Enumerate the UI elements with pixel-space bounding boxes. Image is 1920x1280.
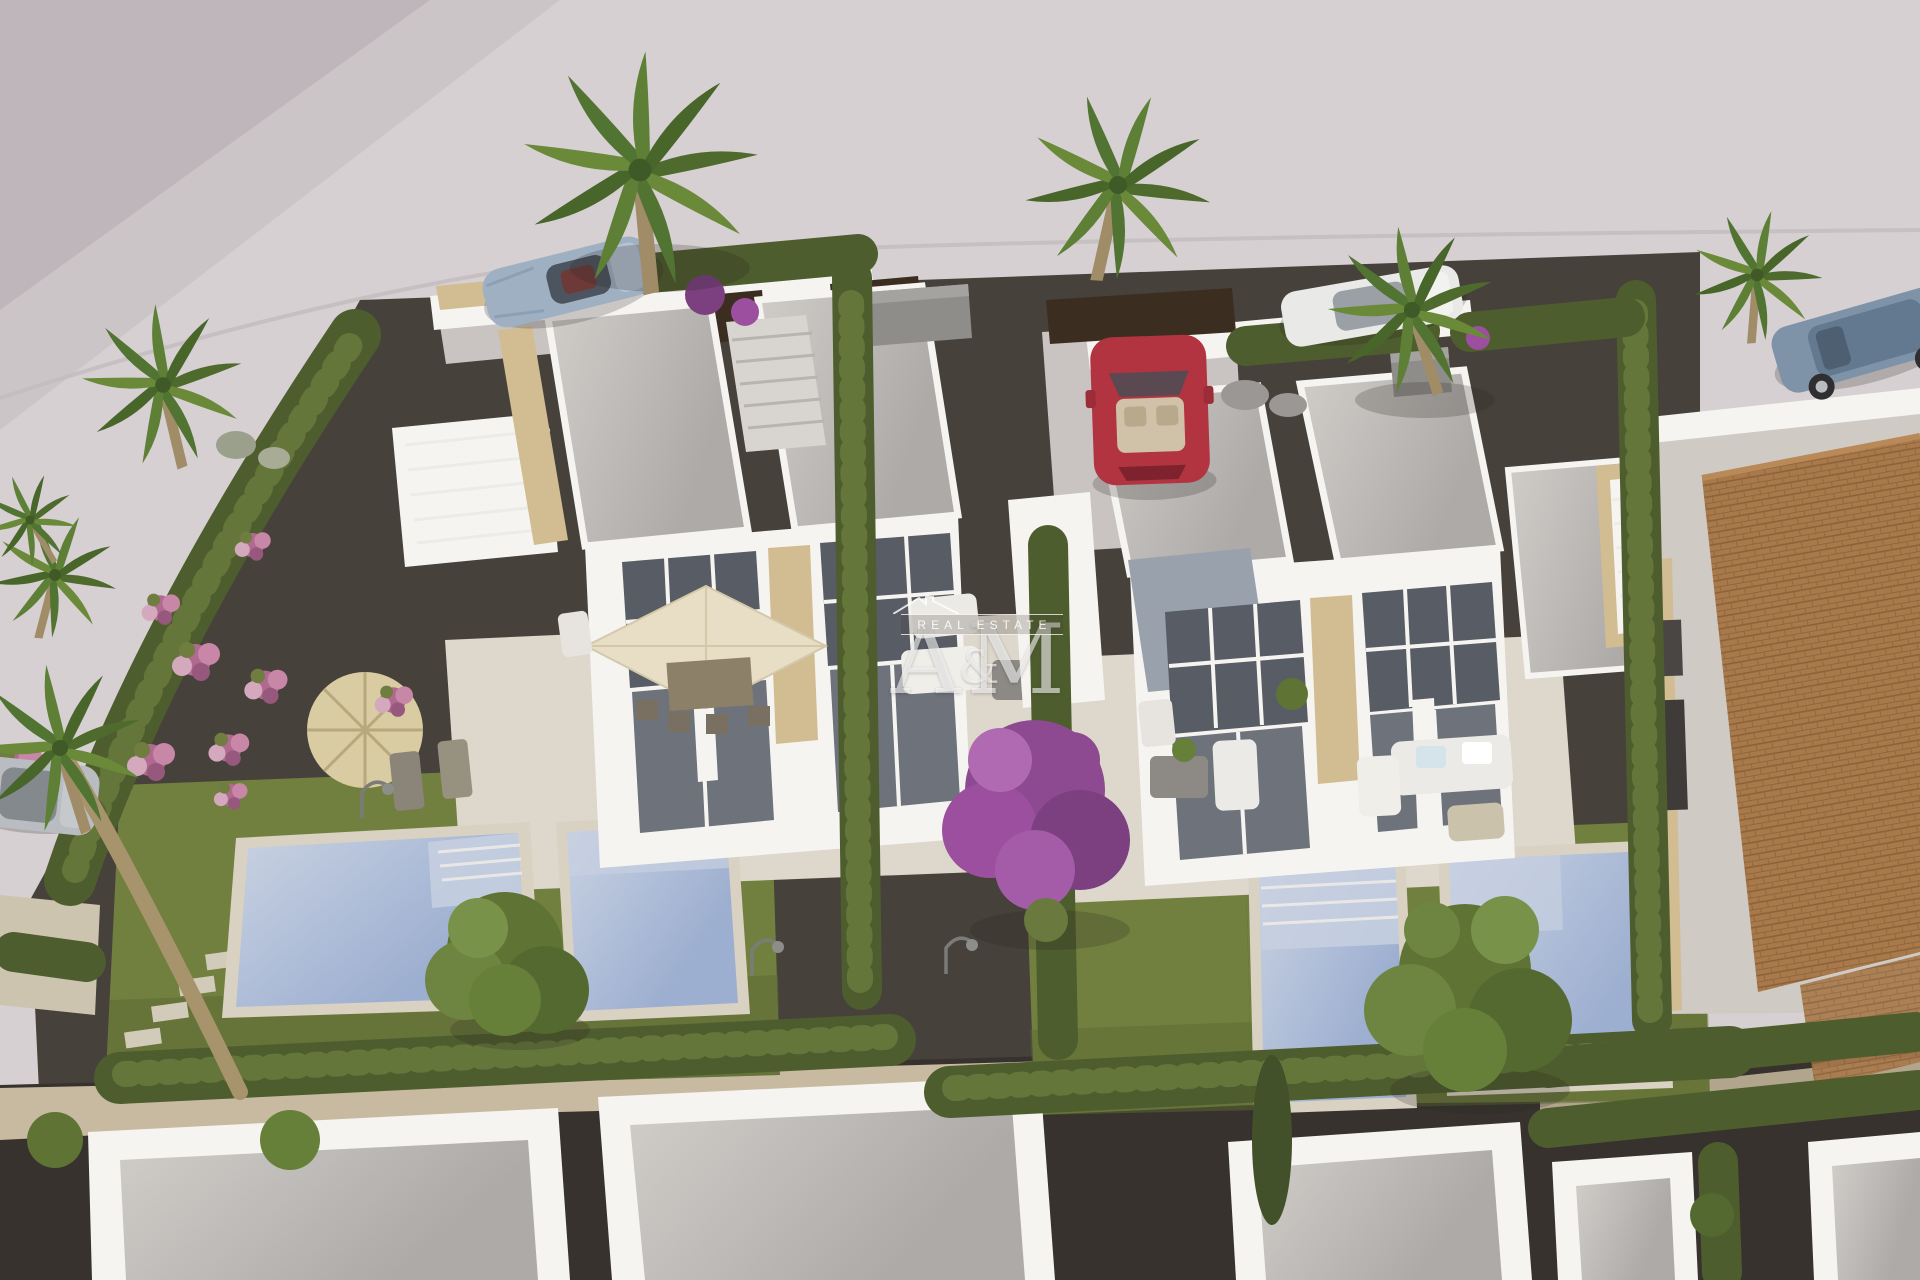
ac-unit bbox=[856, 284, 972, 347]
dining-table bbox=[666, 657, 753, 711]
pouf bbox=[1447, 802, 1505, 842]
red-car bbox=[1084, 334, 1218, 502]
roof-left-unit bbox=[548, 303, 748, 546]
potted-plant bbox=[1276, 678, 1308, 710]
sofa bbox=[910, 593, 980, 640]
sun-lounger bbox=[437, 739, 473, 800]
sofa bbox=[1390, 734, 1513, 796]
aerial-render: REAL ESTATE A & M bbox=[0, 0, 1920, 1280]
scene bbox=[0, 0, 1920, 1280]
coffee-table bbox=[1150, 756, 1208, 798]
sun-lounger bbox=[389, 751, 425, 812]
terracotta-house bbox=[1640, 388, 1920, 1088]
